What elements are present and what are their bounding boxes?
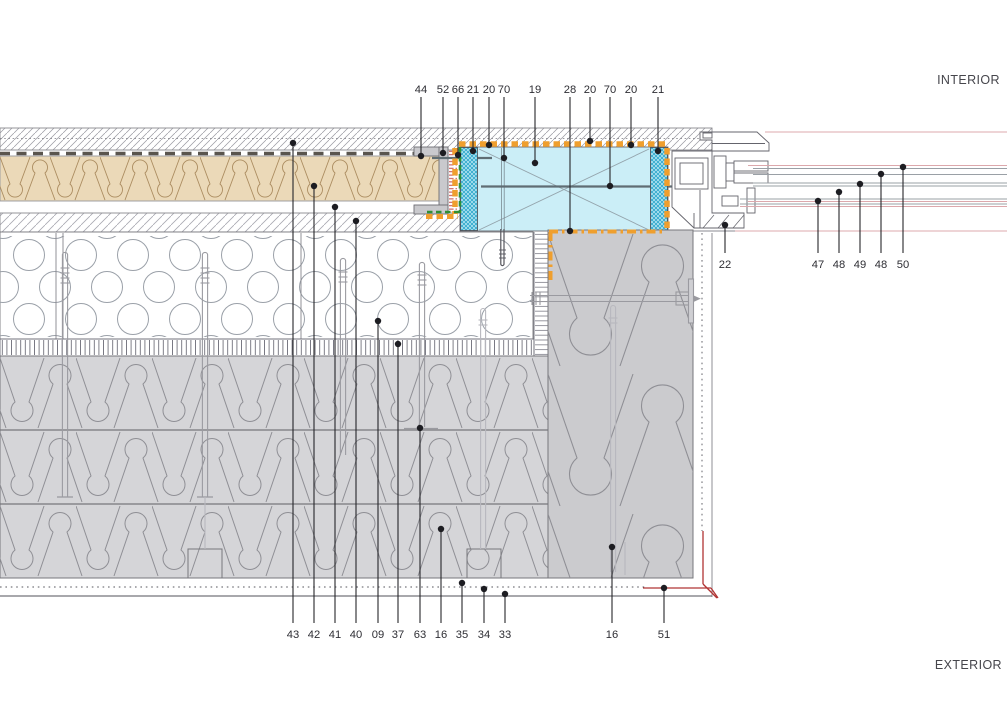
callout-dot-bottom-16 [609,544,615,550]
callout-dot-bottom-35 [459,580,465,586]
callout-label-bottom-40: 40 [350,629,362,641]
callout-dot-top-44 [418,153,424,159]
callout-dot-right-49 [857,181,863,187]
facade-insulation-field [0,356,552,578]
callout-dot-top-66 [455,152,461,158]
callout-label-top-44: 44 [415,84,427,96]
window-profile-body [460,147,668,231]
callout-label-top-66: 66 [452,84,464,96]
levelling-comb-band [0,339,534,356]
block-loops-pattern [548,230,693,578]
callout-dot-bottom-43 [290,140,296,146]
frame-glazing-bead [747,188,755,213]
construction-detail-sheet: INTERIOR EXTERIOR 4452662120701928207020… [0,0,1007,708]
reveal-thermal-block [530,230,700,578]
callout-label-right-48: 48 [875,259,887,271]
callout-dot-top-28 [567,228,573,234]
callout-label-right-48: 48 [833,259,845,271]
callout-dot-top-20 [486,142,492,148]
callout-label-bottom-41: 41 [329,629,341,641]
exterior-label: EXTERIOR [935,658,1002,672]
mineral-wool-pattern [0,156,441,201]
construction-detail-drawing: INTERIOR EXTERIOR 4452662120701928207020… [0,0,1007,708]
callout-dot-right-22 [722,222,728,228]
callout-label-bottom-16: 16 [606,629,618,641]
callout-dot-bottom-51 [661,585,667,591]
callout-label-bottom-35: 35 [456,629,468,641]
callout-dot-right-50 [900,164,906,170]
callout-label-bottom-33: 33 [499,629,511,641]
callout-label-top-52: 52 [437,84,449,96]
callout-label-bottom-43: 43 [287,629,299,641]
frame-detail-block [722,196,738,206]
callout-dot-bottom-37 [395,341,401,347]
callout-label-top-19: 19 [529,84,541,96]
callout-label-top-28: 28 [564,84,576,96]
callout-label-bottom-16: 16 [435,629,447,641]
callout-dot-bottom-40 [353,218,359,224]
callout-label-right-22: 22 [719,259,731,271]
callout-dot-bottom-16 [438,526,444,532]
callout-dot-top-52 [440,150,446,156]
frame-chamber-inner [680,163,703,184]
callout-dot-top-21 [655,148,661,154]
window-frame-section [426,144,697,231]
callout-label-top-70: 70 [604,84,616,96]
callout-dot-right-47 [815,198,821,204]
hollow-core-slab [0,232,553,357]
callout-dot-top-20 [587,138,593,144]
callout-label-top-70: 70 [498,84,510,96]
frame-top-detail [703,133,712,138]
callout-dot-right-48 [878,171,884,177]
callout-label-top-21: 21 [652,84,664,96]
callout-label-bottom-34: 34 [478,629,490,641]
callout-dot-bottom-33 [502,591,508,597]
callout-dot-right-48 [836,189,842,195]
callout-label-top-20: 20 [584,84,596,96]
insulation-loops-pattern [0,356,552,578]
callout-dot-top-70 [607,183,613,189]
callout-label-bottom-51: 51 [658,629,670,641]
callout-label-right-50: 50 [897,259,909,271]
frame-mullion [714,156,726,188]
callout-dot-top-20 [628,142,634,148]
callout-dot-bottom-34 [481,586,487,592]
callout-dot-top-19 [532,160,538,166]
callout-dot-bottom-42 [311,183,317,189]
interior-label: INTERIOR [937,73,1000,87]
callout-label-bottom-63: 63 [414,629,426,641]
callout-label-top-20: 20 [625,84,637,96]
callout-label-top-20: 20 [483,84,495,96]
frame-connector [726,163,734,181]
callout-dot-top-70 [501,155,507,161]
core-circles-pattern [0,236,533,337]
callout-dot-bottom-63 [417,425,423,431]
callout-label-bottom-42: 42 [308,629,320,641]
callout-label-right-47: 47 [812,259,824,271]
thermal-break-left [461,148,478,231]
callout-label-right-49: 49 [854,259,866,271]
callout-label-bottom-09: 09 [372,629,384,641]
callout-dot-bottom-09 [375,318,381,324]
callout-dot-top-21 [470,148,476,154]
region-labels: INTERIOR EXTERIOR [935,73,1002,672]
plaster-hatch-layer [0,213,460,232]
callout-dot-bottom-41 [332,204,338,210]
callout-label-top-21: 21 [467,84,479,96]
callout-label-bottom-37: 37 [392,629,404,641]
